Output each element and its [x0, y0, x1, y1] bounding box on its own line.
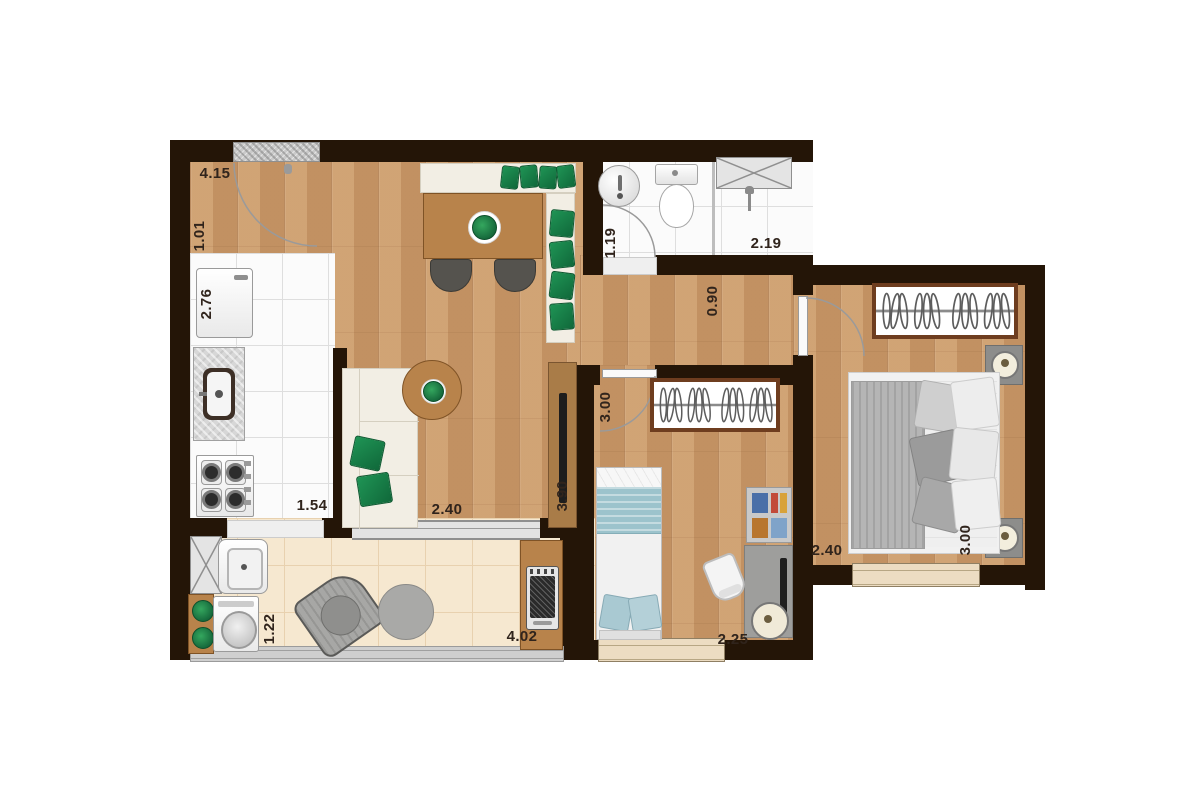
- dimension-label: 2.25: [711, 631, 755, 649]
- dimension-label: 2.40: [805, 542, 849, 560]
- dimension-label: 3.00: [597, 385, 615, 429]
- dimension-label: 3.00: [957, 518, 975, 562]
- dimension-label: 1.01: [191, 214, 209, 258]
- labels-layer: 4.151.012.761.541.192.190.903.003.902.40…: [0, 0, 1200, 799]
- dimension-label: 2.76: [198, 282, 216, 326]
- dimension-label: 1.22: [261, 607, 279, 651]
- dimension-label: 2.40: [425, 501, 469, 519]
- floor-plan: 4.151.012.761.541.192.190.903.003.902.40…: [0, 0, 1200, 799]
- dimension-label: 4.02: [500, 628, 544, 646]
- dimension-label: 1.54: [290, 497, 334, 515]
- dimension-label: 1.19: [602, 221, 620, 265]
- dimension-label: 2.19: [744, 235, 788, 253]
- dimension-label: 0.90: [704, 279, 722, 323]
- dimension-label: 4.15: [193, 165, 237, 183]
- dimension-label: 3.90: [554, 474, 572, 518]
